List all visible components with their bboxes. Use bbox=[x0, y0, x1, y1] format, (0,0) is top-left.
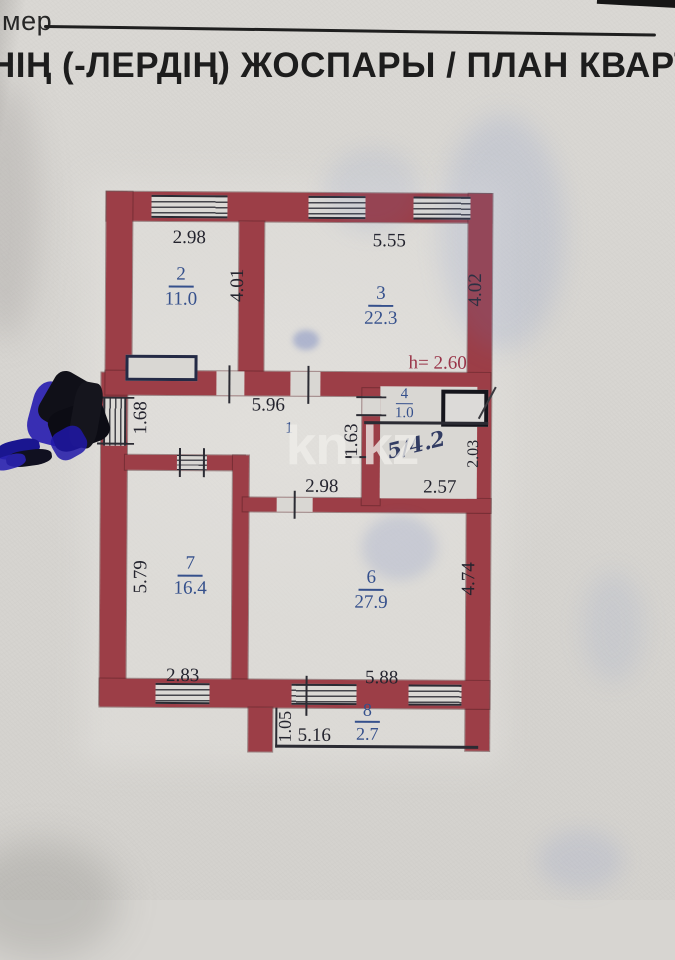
room-label-7: 7 16.4 bbox=[173, 554, 207, 599]
room-number: 8 bbox=[355, 701, 380, 723]
watermark: kn.kz bbox=[286, 413, 419, 477]
dim-room6-door: 2.98 bbox=[305, 476, 338, 498]
room-label-8: 8 2.7 bbox=[355, 701, 380, 744]
ceiling-height-note: h= 2.60 bbox=[408, 352, 466, 374]
dim-balcony-depth: 1.05 bbox=[275, 711, 296, 743]
room-label-6: 6 27.9 bbox=[354, 568, 388, 613]
room-area: 16.4 bbox=[173, 577, 206, 599]
dim-bath-side: 2.03 bbox=[465, 440, 483, 468]
tick bbox=[97, 443, 134, 445]
dim-bath-width: 2.57 bbox=[423, 477, 456, 499]
tick bbox=[307, 366, 309, 404]
door-room3 bbox=[290, 372, 320, 396]
dim-room6-width: 5.88 bbox=[365, 667, 398, 689]
dim-room2-depth: 4.01 bbox=[227, 269, 249, 302]
closet bbox=[125, 355, 197, 381]
window-room2 bbox=[151, 195, 227, 218]
room-area: 2.7 bbox=[356, 723, 379, 744]
scanned-paper: мер НІҢ (-ЛЕРДІҢ) ЖОСПАРЫ / ПЛАН КВАРТИ bbox=[0, 0, 675, 900]
tick bbox=[305, 676, 307, 716]
room-number: 4 bbox=[396, 387, 414, 404]
wall-balcony-stub bbox=[248, 707, 272, 751]
room-label-3: 3 22.3 bbox=[364, 284, 398, 329]
tick bbox=[179, 448, 181, 477]
dim-room2-width: 2.98 bbox=[173, 227, 206, 249]
dim-room7-width: 2.83 bbox=[166, 665, 199, 687]
dim-room7-depth: 5.79 bbox=[130, 560, 152, 593]
window-room6 bbox=[408, 684, 461, 705]
room-area: 22.3 bbox=[364, 307, 397, 329]
room-number: 7 bbox=[177, 554, 203, 577]
wall-left-upper bbox=[105, 192, 132, 374]
room-number: 2 bbox=[168, 265, 194, 288]
wall-room7-room6 bbox=[232, 455, 249, 691]
dim-room3-width: 5.55 bbox=[373, 230, 406, 252]
window-room3-right bbox=[413, 196, 470, 219]
room-area: 27.9 bbox=[354, 591, 387, 613]
dim-balcony-width: 5.16 bbox=[298, 725, 331, 747]
tick bbox=[356, 396, 386, 398]
tick bbox=[203, 448, 205, 477]
dim-room3-depth: 4.02 bbox=[465, 273, 487, 306]
tick bbox=[228, 365, 230, 403]
tick bbox=[294, 491, 296, 519]
room-area: 11.0 bbox=[165, 287, 198, 309]
dim-left-window: 1.68 bbox=[130, 401, 152, 434]
dim-hall-width: 5.96 bbox=[252, 394, 285, 416]
balcony-door-window bbox=[291, 684, 356, 705]
window-room3-left bbox=[308, 196, 365, 219]
room-number: 3 bbox=[368, 284, 394, 307]
dim-room6-depth: 4.74 bbox=[458, 562, 480, 595]
room-number: 6 bbox=[358, 568, 384, 591]
room-label-2: 2 11.0 bbox=[165, 265, 198, 310]
